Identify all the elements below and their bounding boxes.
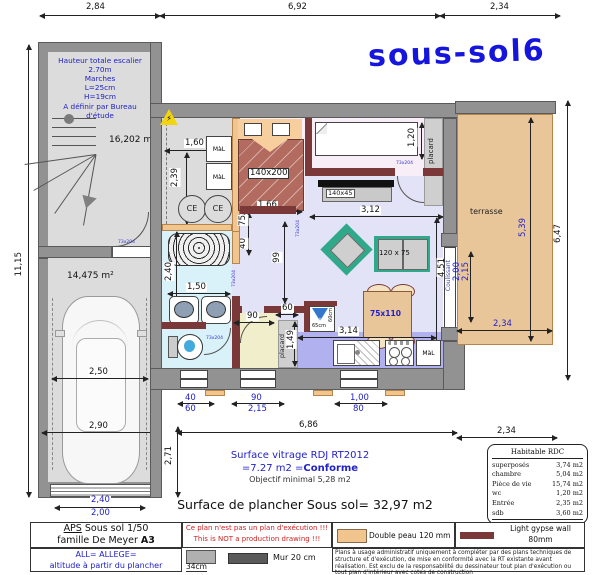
dim-line-terrace-width xyxy=(457,330,552,331)
dim-bath-height: 2,40 xyxy=(164,262,175,281)
bedroom2-door-size: 73x204 xyxy=(396,162,413,167)
sink-wall xyxy=(162,322,206,329)
water-heater-1: CE xyxy=(178,195,206,223)
bedroom1-door-size: 73x204 xyxy=(297,220,302,237)
dim-line-facade-side xyxy=(177,427,178,497)
page-title: sous-sol6 xyxy=(367,33,546,74)
dim-top-right: 2,34 xyxy=(489,3,510,12)
fridge-depth: 60cm xyxy=(329,308,334,322)
legend-aps-cell: APS Sous sol 1/50 famille De Meyer A3 xyxy=(30,522,182,548)
warning-glyph: ⚡ xyxy=(166,114,172,123)
bedroom2-bottom-wall-b xyxy=(423,168,443,176)
bed-size: 140x200 xyxy=(248,168,289,179)
dim-line-left-total xyxy=(28,45,29,497)
sill-3 xyxy=(385,390,405,396)
car-mirror-left xyxy=(55,330,65,337)
dim-bath-width: 1,50 xyxy=(186,283,207,292)
stair-treads xyxy=(52,118,96,154)
dim-tech-width: 1,60 xyxy=(184,139,205,148)
dim-bed-gap: 75 xyxy=(238,215,249,226)
bed-pillow-1 xyxy=(244,123,262,136)
rdc-title: Habitable RDC xyxy=(492,447,583,459)
sink-2 xyxy=(201,296,231,324)
kitchen-faucet xyxy=(355,350,360,355)
washer-1: MàL xyxy=(206,136,232,162)
dim-line-rdc xyxy=(457,437,557,438)
dim-placard-width: 60 xyxy=(281,304,294,313)
dim-win2-a: 90 xyxy=(250,394,263,403)
dim-right-total: 6,47 xyxy=(553,224,564,243)
single-bed-fold xyxy=(316,123,327,134)
stove-knobs xyxy=(388,341,412,345)
terrace-label: terrasse xyxy=(470,208,503,216)
dim-terrace-width: 2,34 xyxy=(492,320,513,329)
garage-limit-right xyxy=(146,298,147,470)
entry-top-wall-a xyxy=(232,306,242,313)
stair-garage-wall xyxy=(38,246,112,258)
wc-water xyxy=(184,340,195,352)
sink-basin xyxy=(206,301,226,318)
rdc-row: chambre5,04 m2 xyxy=(492,469,583,479)
dim-garage-outer: 2,90 xyxy=(88,422,109,431)
rdc-row: Entrée2,35 m2 xyxy=(492,497,583,507)
dim-terrace-len: 5,39 xyxy=(518,218,529,237)
dim-entry-door: 90 xyxy=(246,312,259,321)
dim-line-entry-door xyxy=(234,322,274,323)
dim-single-bed: 1,20 xyxy=(407,128,418,147)
stair-door-size: 73x204 xyxy=(118,241,135,246)
dim-win3-a: 1,00 xyxy=(349,394,370,403)
dim-placard-depth: 1,49 xyxy=(286,330,297,349)
terrace xyxy=(457,114,553,345)
peau-swatch xyxy=(337,529,367,543)
bedroom2-bottom-wall-a xyxy=(310,168,395,176)
wc-door-size: 73x204 xyxy=(206,337,223,342)
sill-1 xyxy=(205,390,225,396)
legend-allege-cell: ALL= ALLEGE= altitude à partir du planch… xyxy=(30,548,182,572)
right-wall-upper xyxy=(443,118,457,246)
dim-line-top-left xyxy=(40,15,160,16)
sofa-size: 120 x 75 xyxy=(379,250,410,257)
shower xyxy=(168,233,230,266)
bath-top-lining xyxy=(162,224,232,231)
dim-terrace-b: 2,15 xyxy=(461,262,472,281)
entry-placard-label: placard xyxy=(279,334,286,358)
dim-line-placard-width xyxy=(276,314,298,315)
dim-tech-height: 2,39 xyxy=(170,168,181,187)
legend-mur-swatch xyxy=(228,553,268,564)
dim-line-room2-width xyxy=(310,216,443,217)
legend-disclaimer-cell: Plans à usage administratif uniquement à… xyxy=(332,548,585,572)
surface-total: Surface de plancher Sous sol= 32,97 m2 xyxy=(140,499,470,512)
desk-top xyxy=(318,180,394,187)
dim-top-mid: 6,92 xyxy=(287,3,308,12)
dim-hall: 99 xyxy=(272,252,283,263)
dim-facade-side: 2,71 xyxy=(164,446,175,465)
dim-top-left: 2,84 xyxy=(85,3,106,12)
dim-line-garage-outer xyxy=(42,432,160,433)
stair-note: Hauteur totale escalier 2.70m Marches L=… xyxy=(50,56,150,120)
tech-dashed-limit xyxy=(166,118,167,224)
washer-2: MàL xyxy=(206,163,232,190)
dim-line-right-total xyxy=(567,101,568,380)
dim-line-top-mid xyxy=(160,15,440,16)
table-size: 75x110 xyxy=(370,310,401,318)
window-kitchen xyxy=(340,370,378,388)
dim-win2-b: 2,15 xyxy=(247,405,268,414)
legend-peau-cell: Double peau 120 mm xyxy=(332,522,455,548)
bedroom1-bottom-wall xyxy=(240,206,296,214)
dim-line-single-bed xyxy=(421,123,422,159)
dim-line-hall xyxy=(284,222,285,303)
bed-fold xyxy=(252,139,288,152)
rdc-row: superposés3,74 m2 xyxy=(492,459,583,469)
area-garage: 14,475 m² xyxy=(66,272,115,281)
dim-line-terrace-len xyxy=(530,118,531,341)
car-roof xyxy=(76,338,126,432)
fridge-width: 65cm xyxy=(312,324,326,329)
dim-line-win1 xyxy=(178,403,214,404)
legend-warning-cell: Ce plan n'est pas un plan d'exécution !!… xyxy=(182,522,332,548)
building-top-wall xyxy=(150,103,460,118)
desk-size: 140x45 xyxy=(326,189,355,198)
dim-rdc: 2,34 xyxy=(496,427,517,436)
dim-win3-b: 80 xyxy=(352,405,365,414)
terrace-top-wall xyxy=(455,101,556,114)
garage-limit-left xyxy=(52,298,53,470)
right-wall-lower xyxy=(443,341,465,390)
sink-1 xyxy=(169,296,199,324)
dim-garage-inner: 2,50 xyxy=(88,368,109,377)
floor-plan: sous-sol6 2,84 6,92 2,34 11,15 6,47 Haut… xyxy=(0,0,614,575)
vitrage-note: Surface vitrage RDJ RT2012 =7.27 m2 =Con… xyxy=(180,450,420,485)
dim-win1-a: 40 xyxy=(184,394,197,403)
rdc-row: sdb3,60 m2 xyxy=(492,507,583,517)
stove-burner-4 xyxy=(401,357,410,366)
bedroom2-placard-label: placard xyxy=(428,138,435,164)
dim-living-width: 3,14 xyxy=(338,327,359,336)
aps-label: APS xyxy=(64,523,82,534)
stove-burner-3 xyxy=(389,357,398,366)
stair-post xyxy=(64,114,74,124)
dim-left-total: 11,15 xyxy=(14,252,25,276)
dim-garage-door-a: 2,40 xyxy=(90,496,111,505)
dim-room2-width: 3,12 xyxy=(360,206,381,215)
window-bathroom xyxy=(180,370,208,388)
single-bed xyxy=(315,122,418,156)
dim-line-top-right xyxy=(440,15,560,16)
dim-garage-door-b: 2,00 xyxy=(90,509,111,518)
dim-line-facade xyxy=(177,432,457,433)
legend-mur-label: Mur 20 cm xyxy=(273,554,316,562)
dim-facade: 6,86 xyxy=(298,421,319,430)
bath-door-size: 73x204 xyxy=(233,270,238,287)
bed-pillow-2 xyxy=(272,123,290,136)
legend-allege-height: 34cm xyxy=(186,563,207,572)
gypse-swatch xyxy=(460,532,494,539)
dim-line-bath-width xyxy=(168,293,230,294)
dim-line-garage-inner xyxy=(52,378,148,379)
window-entry xyxy=(240,370,276,388)
rdc-table: Habitable RDC superposés3,74 m2 chambre5… xyxy=(487,444,588,524)
sink-basin xyxy=(174,301,194,318)
sill-2 xyxy=(313,390,333,396)
rdc-row: Pièce de vie15,74 m2 xyxy=(492,478,583,488)
dim-line-living-width xyxy=(298,337,436,338)
stair-door-leaf xyxy=(112,246,152,258)
car-mirror-right xyxy=(137,330,147,337)
kitchen-sink-bowl xyxy=(337,344,355,364)
bath-right-wall-top xyxy=(232,231,240,264)
legend-gypse-cell: Light gypse wall 80mm Ba13 80 mm xyxy=(455,522,585,548)
water-heater-2: CE xyxy=(204,195,232,223)
rdc-row: wc1,20 m2 xyxy=(492,488,583,498)
dim-win1-b: 60 xyxy=(184,405,197,414)
kitchen-washer: MàL xyxy=(416,340,441,366)
